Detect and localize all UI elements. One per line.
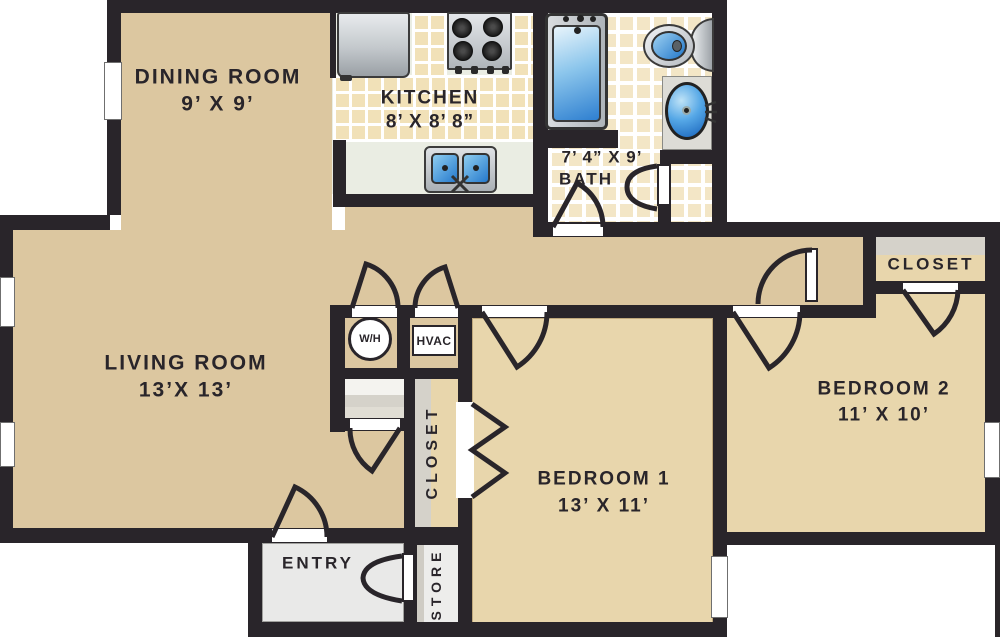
linen-closet-shelf xyxy=(345,395,404,407)
wall xyxy=(330,13,336,78)
window xyxy=(711,556,728,618)
wall xyxy=(107,0,727,13)
wall xyxy=(397,305,410,368)
stove-knob xyxy=(487,66,494,74)
bathtub-faucet xyxy=(590,16,596,22)
wall xyxy=(863,237,876,318)
wall xyxy=(548,130,618,148)
room-label-bedroom2-closet: CLOSET xyxy=(888,256,975,273)
hvac-unit: HVAC xyxy=(412,325,456,356)
wall xyxy=(248,528,262,637)
wall xyxy=(660,150,712,164)
window xyxy=(984,422,1000,478)
bath-sink-drain xyxy=(682,106,691,115)
door-gap-wh xyxy=(352,306,397,317)
door-gap-linen xyxy=(350,419,400,430)
room-dims-bedroom2: 11’ X 10’ xyxy=(838,406,930,425)
door-gap-bedroom2 xyxy=(733,306,800,317)
stove-knob xyxy=(455,66,462,74)
stove-knob xyxy=(471,66,478,74)
door-gap-hvac xyxy=(415,306,458,317)
room-label-dining: DINING ROOM xyxy=(135,67,302,88)
stove-burner xyxy=(482,41,502,61)
room-label-entry: ENTRY xyxy=(282,555,354,572)
kitchen-tiles xyxy=(412,13,447,75)
wall xyxy=(0,215,110,230)
bath-closet-door-leaf xyxy=(657,164,671,206)
room-label-living: LIVING ROOM xyxy=(104,353,267,374)
bedroom2-closet-shelf xyxy=(876,237,985,255)
room-label-bath: BATH xyxy=(559,171,613,188)
room-label-bedroom2: BEDROOM 2 xyxy=(817,380,950,399)
floor-plan: W/H HVAC DINING ROOM 9’ X 9’ KITCHEN 8’ … xyxy=(0,0,1000,637)
wall xyxy=(658,205,671,230)
toilet-flush xyxy=(672,40,682,52)
bedroom2-floor xyxy=(876,294,985,318)
room-dims-dining: 9’ X 9’ xyxy=(181,94,255,115)
room-dims-bedroom1: 13’ X 11’ xyxy=(558,497,650,516)
wall xyxy=(985,222,1000,545)
room-label-bedroom1: BEDROOM 1 xyxy=(537,470,670,489)
room-label-hall-closet: CLOSET xyxy=(425,405,441,500)
door-gap-bedroom2-closet xyxy=(903,283,958,292)
wall xyxy=(0,528,415,543)
refrigerator xyxy=(337,12,410,78)
water-heater: W/H xyxy=(348,317,392,361)
kitchen-hall-floor xyxy=(345,207,533,305)
stove-burner xyxy=(483,17,503,37)
kitchen-tiles xyxy=(512,13,533,75)
closet-bifold-opening xyxy=(456,402,474,498)
window xyxy=(0,277,15,327)
linen-closet-shelf xyxy=(345,379,404,395)
dining-room-floor xyxy=(121,13,332,230)
wall xyxy=(333,140,346,200)
sink-drain xyxy=(473,165,479,171)
stove-burner xyxy=(453,41,473,61)
store-shelf xyxy=(417,545,424,622)
room-dims-kitchen: 8’ X 8’ 8” xyxy=(386,113,474,132)
linen-closet-shelf xyxy=(345,407,404,418)
wall xyxy=(712,0,727,237)
sink-drain xyxy=(442,165,448,171)
window xyxy=(0,422,15,467)
wall xyxy=(333,194,548,207)
refrigerator-handle xyxy=(340,75,352,81)
stove-knob xyxy=(502,66,509,74)
room-dims-living: 13’X 13’ xyxy=(139,380,233,401)
store-door-leaf xyxy=(402,553,415,602)
door-gap-bath xyxy=(553,224,603,236)
hall-closet-door-leaf xyxy=(805,248,818,302)
wall xyxy=(533,222,1000,237)
stove-burner xyxy=(452,18,472,38)
bathtub-faucet xyxy=(563,16,569,22)
wall xyxy=(995,545,1000,637)
wall xyxy=(713,532,1000,545)
door-gap-entry-living xyxy=(272,529,327,542)
bathtub-faucet xyxy=(577,15,584,22)
bathtub-basin xyxy=(552,25,601,122)
door-gap-bedroom1 xyxy=(482,306,547,317)
wall xyxy=(0,215,13,543)
wall xyxy=(248,622,727,637)
window xyxy=(104,62,122,120)
room-label-store: STORE xyxy=(429,548,443,621)
room-label-kitchen: KITCHEN xyxy=(381,89,479,108)
wall xyxy=(333,368,458,379)
room-dims-bath: 7’ 4” X 9’ xyxy=(562,149,643,166)
bathtub-faucet xyxy=(574,27,581,34)
